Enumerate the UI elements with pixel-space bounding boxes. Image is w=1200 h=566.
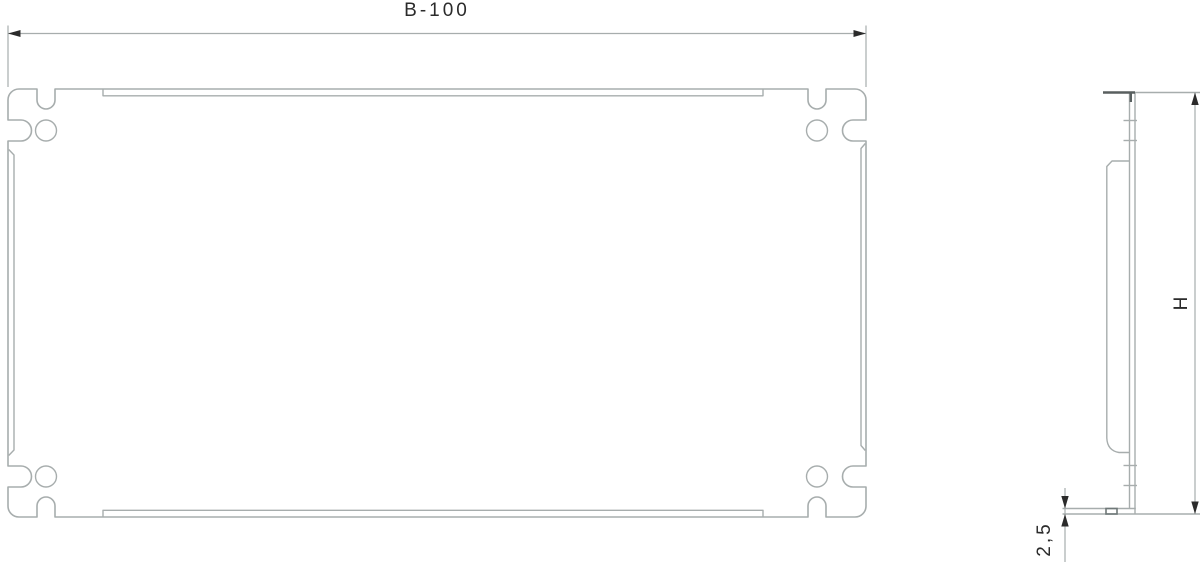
arrowhead-bottom <box>1191 502 1198 515</box>
width-dimension: B-100 <box>8 0 866 87</box>
side-profile-view: H 2,5 <box>1034 93 1200 563</box>
hem-line-bottom <box>103 510 763 516</box>
foot-bend-cap <box>1106 509 1117 515</box>
arrowhead-top <box>1191 93 1198 106</box>
hem-line-left <box>9 150 14 456</box>
arrowhead-upper <box>1061 496 1068 509</box>
height-dimension-label: H <box>1171 294 1192 311</box>
front-view: B-100 <box>8 0 866 517</box>
hem-line-top <box>103 90 763 96</box>
thickness-dimension-label: 2,5 <box>1034 521 1055 556</box>
arrowhead-right <box>854 30 867 37</box>
corner-hole-bottom-left <box>36 466 57 487</box>
plate-outline <box>8 89 866 517</box>
corner-hole-top-left <box>36 120 57 141</box>
width-dimension-label: B-100 <box>404 0 470 21</box>
arrowhead-left <box>8 30 21 37</box>
hem-line-right <box>861 144 865 451</box>
corner-hole-top-right <box>807 120 828 141</box>
technical-drawing: B-100 <box>0 0 1200 566</box>
arrowhead-lower <box>1061 514 1068 527</box>
drawing-canvas: B-100 <box>0 0 1200 566</box>
corner-hole-bottom-right <box>807 466 828 487</box>
thickness-dimension: 2,5 <box>1034 488 1069 562</box>
flange-line <box>1107 161 1129 453</box>
height-dimension: H <box>1171 93 1199 515</box>
